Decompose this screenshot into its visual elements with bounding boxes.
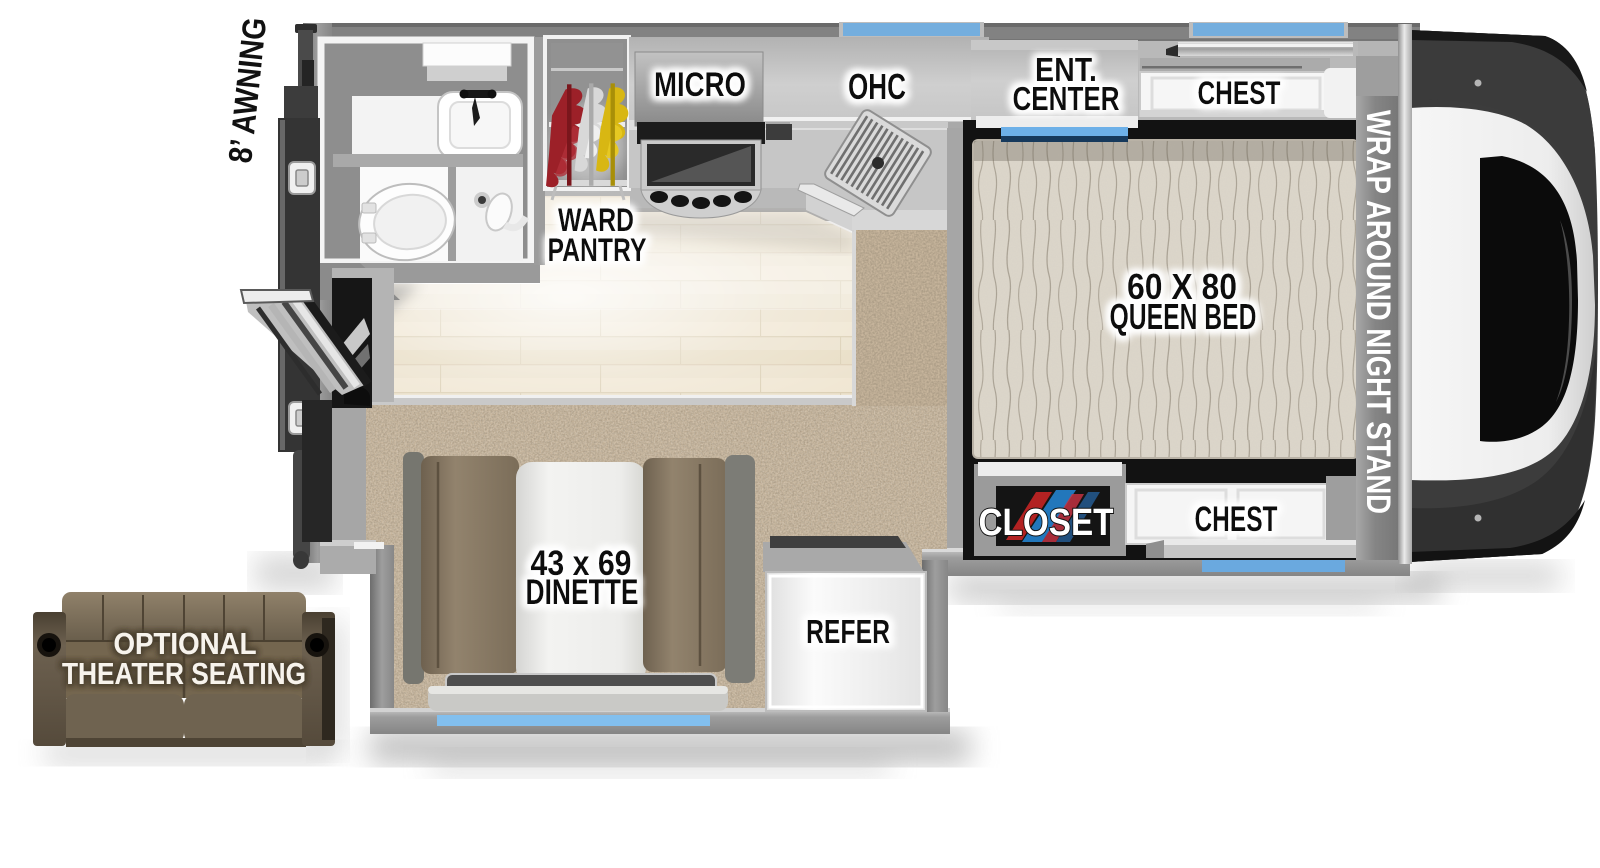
svg-text:QUEEN BED: QUEEN BED [1110,296,1257,337]
svg-text:THEATER SEATING: THEATER SEATING [62,656,306,691]
svg-text:WRAP AROUND NIGHT STAND: WRAP AROUND NIGHT STAND [1359,110,1397,514]
svg-text:OHC: OHC [848,66,906,107]
svg-text:MICRO: MICRO [654,66,746,104]
svg-text:CHEST: CHEST [1198,75,1281,111]
svg-text:PANTRY: PANTRY [548,232,647,268]
svg-text:CENTER: CENTER [1013,80,1120,117]
svg-text:DINETTE: DINETTE [526,573,639,612]
svg-text:CHEST: CHEST [1195,500,1278,539]
svg-text:CLOSET: CLOSET [979,502,1114,544]
svg-text:REFER: REFER [806,613,890,650]
